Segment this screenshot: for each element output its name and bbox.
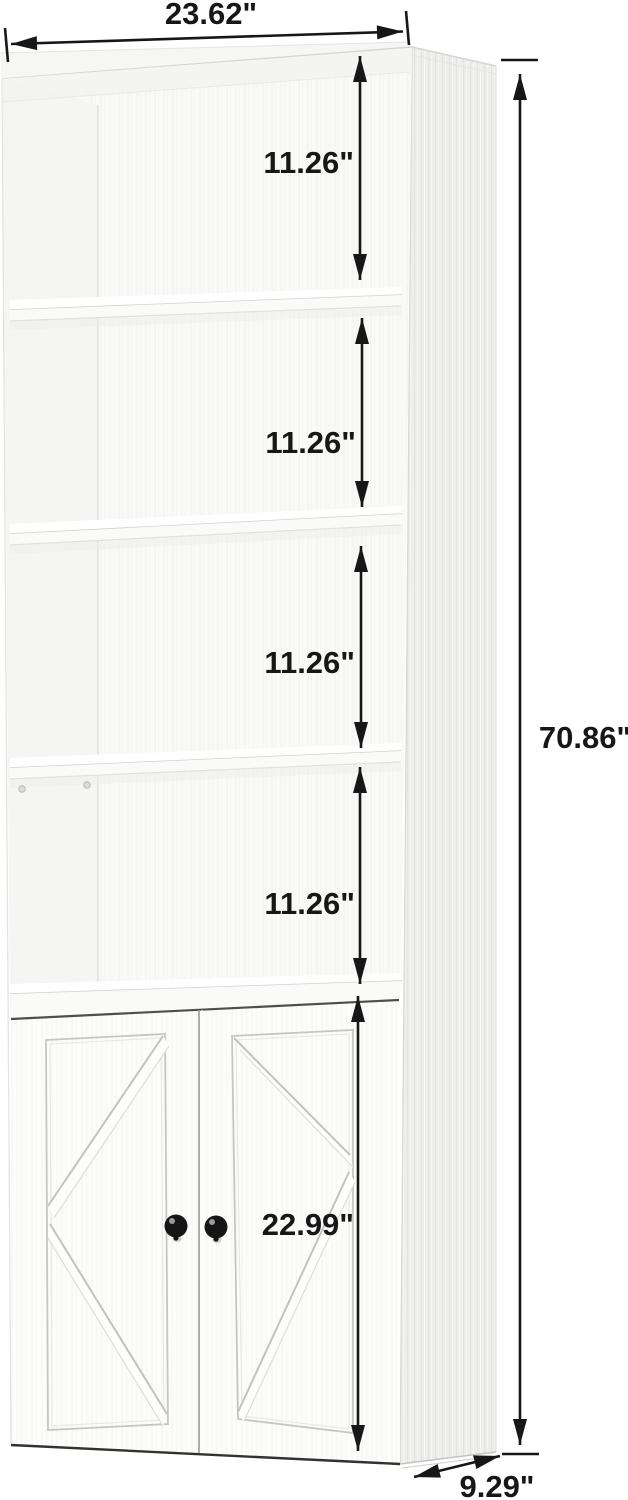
dim-depth-label: 9.29"	[459, 1469, 534, 1500]
dim-door-section-label: 22.99"	[262, 1207, 354, 1242]
product-dimension-diagram: 23.62" 70.86" 11.26" 11.26" 11.26" 11.26…	[0, 0, 628, 1500]
dim-depth: 9.29"	[414, 1456, 535, 1500]
dim-section-2-label: 11.26"	[265, 425, 356, 460]
dim-width-label: 23.62"	[165, 0, 257, 31]
shelf-pin-hole	[84, 782, 90, 788]
shelf-pin-hole	[19, 786, 25, 792]
dim-section-3-label: 11.26"	[264, 645, 355, 680]
dim-total-height: 70.86"	[501, 60, 628, 1454]
dim-total-height-label: 70.86"	[539, 720, 628, 755]
dim-section-1-label: 11.26"	[263, 145, 354, 180]
bookshelf	[0, 42, 496, 1468]
dim-section-4-label: 11.26"	[264, 886, 355, 921]
side-panel	[400, 47, 496, 1468]
